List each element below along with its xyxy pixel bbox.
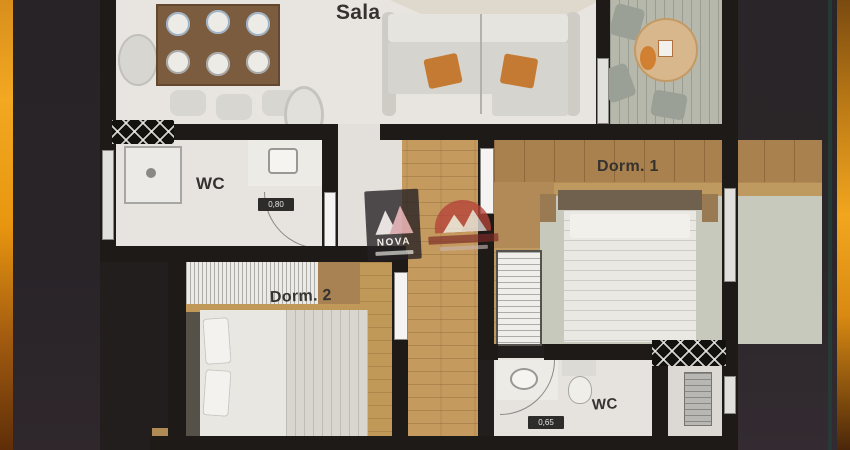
watermark-text-bar	[428, 233, 498, 245]
wall-segment	[100, 246, 406, 262]
room-label-dorm2: Dorm. 2	[270, 287, 332, 307]
plate	[166, 12, 190, 36]
dorm2-pillow	[202, 369, 231, 417]
dorm1-bed-headboard	[558, 190, 702, 210]
dining-chair	[170, 90, 206, 116]
window	[102, 150, 114, 240]
window	[724, 376, 736, 414]
wall-segment	[380, 124, 728, 140]
sofa-armrest	[566, 12, 580, 116]
mountain-logo-icon	[372, 203, 414, 235]
room-label-sala: Sala	[336, 1, 380, 25]
wc1-sink	[268, 148, 298, 174]
plate	[206, 10, 230, 34]
throw-pillow	[500, 53, 539, 88]
dorm2-bed-headboard	[186, 312, 200, 438]
dorm2-door-leaf	[394, 272, 408, 340]
plate	[206, 52, 230, 76]
nightstand	[702, 194, 718, 222]
sofa-backrest	[388, 14, 568, 42]
dorm2-blanket	[286, 310, 368, 446]
watermark-arch-logo	[422, 198, 503, 264]
plate	[166, 50, 190, 74]
wall-segment	[478, 344, 498, 360]
shaft-hatch	[112, 120, 174, 144]
service-rack	[684, 372, 712, 426]
dorm1-pillows	[570, 214, 690, 238]
wc1-door-leaf	[324, 192, 336, 252]
watermark-nova-text: NOVA	[377, 236, 412, 249]
watermark-nova-badge: NOVA	[364, 189, 422, 262]
arch-logo-icon	[433, 199, 491, 234]
balcony-lamp	[640, 46, 656, 70]
wall-segment	[478, 124, 494, 148]
plate	[246, 50, 270, 74]
balcony-glass-door	[597, 58, 609, 124]
room-label-wc-upper: WC	[196, 174, 225, 194]
gold-gradient-strip-left	[0, 0, 13, 450]
floor-plan: 0,80 0,65 Sala WC Dorm. 1 Dorm. 2 WC NOV…	[100, 0, 738, 450]
sofa-seam	[480, 14, 482, 114]
teal-edge-line	[828, 0, 832, 450]
shaft-hatch	[652, 340, 726, 366]
wall-segment	[596, 0, 610, 60]
dimension-tag: 0,65	[528, 416, 564, 429]
dining-chair	[118, 34, 158, 86]
dimension-tag: 0,80	[258, 198, 294, 211]
wall-segment	[150, 436, 738, 450]
dark-band-left	[13, 0, 100, 450]
toilet-bowl	[568, 376, 592, 404]
window	[724, 188, 736, 282]
gold-gradient-strip-right	[837, 0, 850, 450]
wall-segment	[168, 252, 186, 450]
shower-drain	[146, 168, 156, 178]
screenshot-stage: 0,80 0,65 Sala WC Dorm. 1 Dorm. 2 WC NOV…	[0, 0, 850, 450]
dorm1-shelf-unit	[496, 250, 542, 346]
dorm2-pillow	[202, 317, 231, 365]
watermark-subtext-bar	[375, 250, 413, 256]
plate	[246, 12, 270, 36]
toilet-tank	[562, 360, 596, 376]
table-decor	[658, 40, 673, 57]
arch-triangle	[460, 209, 487, 232]
wall-segment	[322, 124, 338, 196]
room-label-dorm1: Dorm. 1	[597, 158, 659, 176]
mountain-peak	[388, 205, 413, 234]
dining-chair	[216, 94, 252, 120]
balcony-chair	[650, 89, 688, 121]
room-label-wc-lower: WC	[592, 395, 618, 413]
watermark-text-bar	[440, 245, 488, 252]
nightstand	[540, 194, 556, 222]
wall-segment	[544, 344, 654, 360]
